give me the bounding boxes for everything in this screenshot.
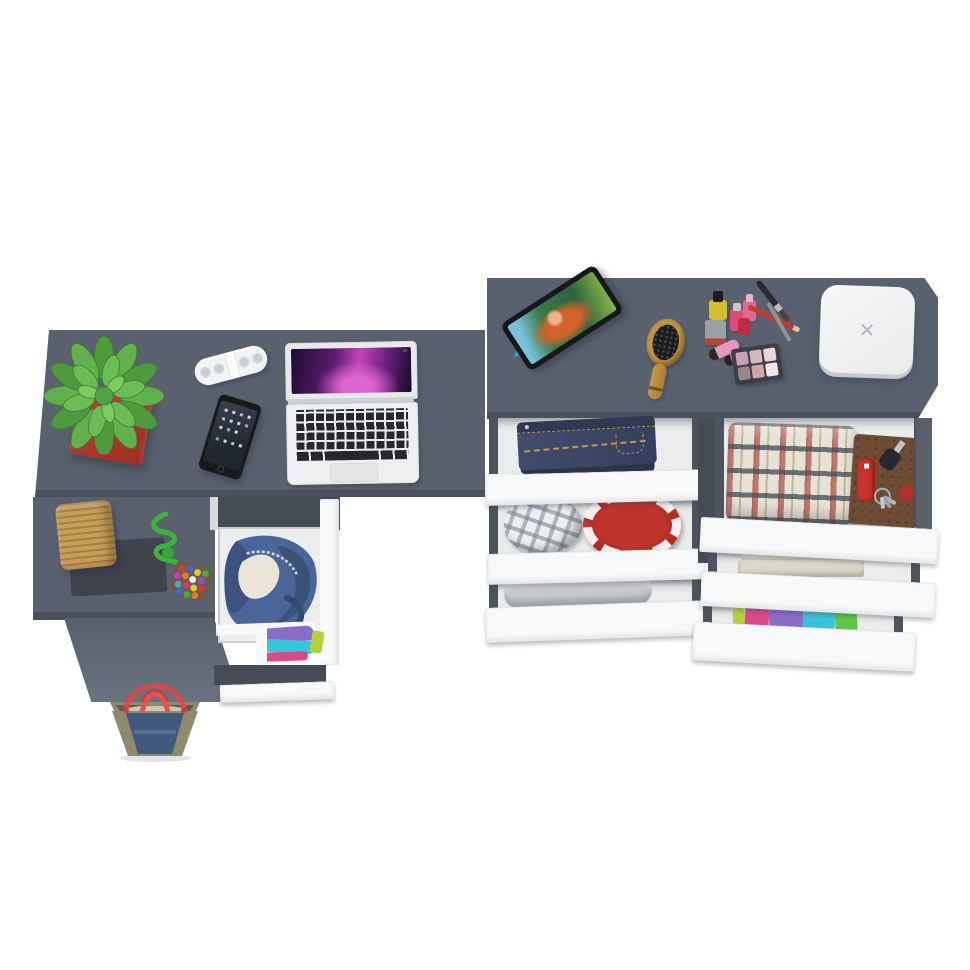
laptop bbox=[285, 341, 417, 483]
cosmetic-jar bbox=[705, 320, 726, 345]
drawer-interior-cap-hat bbox=[489, 500, 701, 554]
knife-emblem bbox=[864, 464, 869, 469]
eyeshadow-palette bbox=[731, 343, 784, 385]
speaker-driver bbox=[237, 355, 250, 368]
brush-handle bbox=[647, 362, 668, 400]
nail-polish-pink-cap bbox=[733, 303, 741, 311]
lower-drawer-front bbox=[220, 681, 335, 703]
bead-pouch bbox=[167, 559, 215, 600]
plant-leaves bbox=[38, 322, 174, 454]
drawer-front bbox=[488, 548, 705, 585]
red-fob bbox=[898, 484, 915, 502]
app-icon-dots bbox=[224, 408, 228, 412]
jeans-pocket bbox=[615, 432, 644, 454]
drawer-front bbox=[485, 600, 704, 643]
scene: ✕ bbox=[0, 0, 970, 970]
spacebar bbox=[328, 451, 368, 461]
car-key bbox=[877, 437, 910, 473]
trackpad bbox=[330, 463, 378, 483]
eyeshadow-pan bbox=[751, 364, 765, 379]
nail-polish-yellow bbox=[709, 300, 727, 320]
lower-drawer-clothes bbox=[262, 627, 320, 667]
pocket-knife bbox=[858, 459, 875, 501]
nail-polish-red bbox=[738, 318, 750, 335]
desk-front-edge bbox=[35, 490, 485, 497]
leather-notebook bbox=[848, 434, 924, 529]
jeans-waistband bbox=[517, 415, 655, 433]
folded-tee-magenta bbox=[262, 651, 308, 662]
keyboard bbox=[296, 408, 409, 450]
wicker-basket bbox=[55, 499, 118, 570]
folded-jeans bbox=[517, 415, 660, 478]
nail-polish-rose-cap bbox=[746, 294, 753, 302]
dresser-side-post bbox=[916, 418, 932, 530]
jeans-top-fold bbox=[517, 415, 657, 470]
drawer-interior-shirt-notebook bbox=[715, 418, 923, 526]
laptop-display bbox=[291, 347, 412, 394]
desk-drawer-unit bbox=[210, 497, 348, 705]
eyeshadow-pan bbox=[763, 347, 777, 362]
speaker-driver bbox=[251, 352, 264, 365]
box-logo-x: ✕ bbox=[858, 318, 876, 343]
drawer-front bbox=[486, 469, 703, 506]
denim-tote-bag bbox=[96, 672, 214, 764]
eyeshadow-pan bbox=[749, 349, 763, 364]
bead-pouch-rope-toy bbox=[138, 508, 218, 600]
eyeshadow-pan bbox=[737, 366, 751, 381]
laptop-deck bbox=[286, 402, 419, 485]
eyeshadow-pan bbox=[765, 362, 779, 377]
laptop-lid bbox=[285, 341, 418, 401]
eyeshadow-pan bbox=[735, 351, 749, 366]
white-square-box: ✕ bbox=[818, 284, 915, 375]
speaker-driver bbox=[212, 362, 225, 375]
speaker-driver bbox=[199, 366, 212, 379]
nail-polish-yellow-cap bbox=[713, 291, 723, 302]
drawer-interior-jeans bbox=[489, 418, 701, 474]
plaid-shirt bbox=[725, 422, 856, 525]
home-button bbox=[216, 465, 225, 474]
camera-dot bbox=[403, 349, 407, 352]
